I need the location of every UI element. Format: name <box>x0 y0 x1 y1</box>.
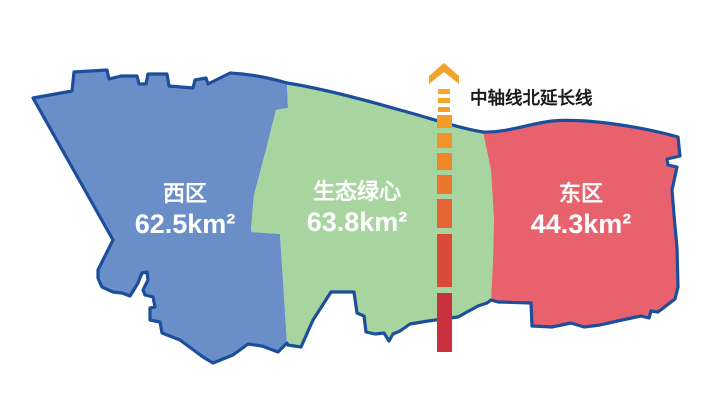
axis-dash-segment <box>437 234 452 287</box>
axis-dash-segment <box>437 115 452 128</box>
region-east-area: 44.3km² <box>531 209 632 239</box>
axis-dash-segment <box>437 199 452 228</box>
region-west-area: 62.5km² <box>135 209 236 239</box>
axis-label: 中轴线北延长线 <box>470 88 593 108</box>
region-green-heart-label: 生态绿心 63.8km² <box>307 179 408 237</box>
axis-dash-segment <box>437 153 452 170</box>
region-east-name: 东区 <box>559 181 603 206</box>
region-green-heart-name: 生态绿心 <box>313 179 401 204</box>
axis-arrow-icon <box>429 63 459 84</box>
axis-dash-segment <box>437 175 452 194</box>
axis-dash-segment <box>438 107 450 112</box>
axis-dash-segment <box>437 293 452 352</box>
region-west-name: 西区 <box>163 181 207 206</box>
axis-dash-segment <box>438 89 450 94</box>
region-green-heart-area: 63.8km² <box>307 207 408 237</box>
axis-dash-segment <box>438 98 450 103</box>
district-map-svg: 西区 62.5km² 生态绿心 63.8km² 东区 44.3km² 中轴线北延… <box>0 0 718 407</box>
axis-dash-segment <box>437 133 452 148</box>
district-map-canvas: 西区 62.5km² 生态绿心 63.8km² 东区 44.3km² 中轴线北延… <box>0 0 718 407</box>
